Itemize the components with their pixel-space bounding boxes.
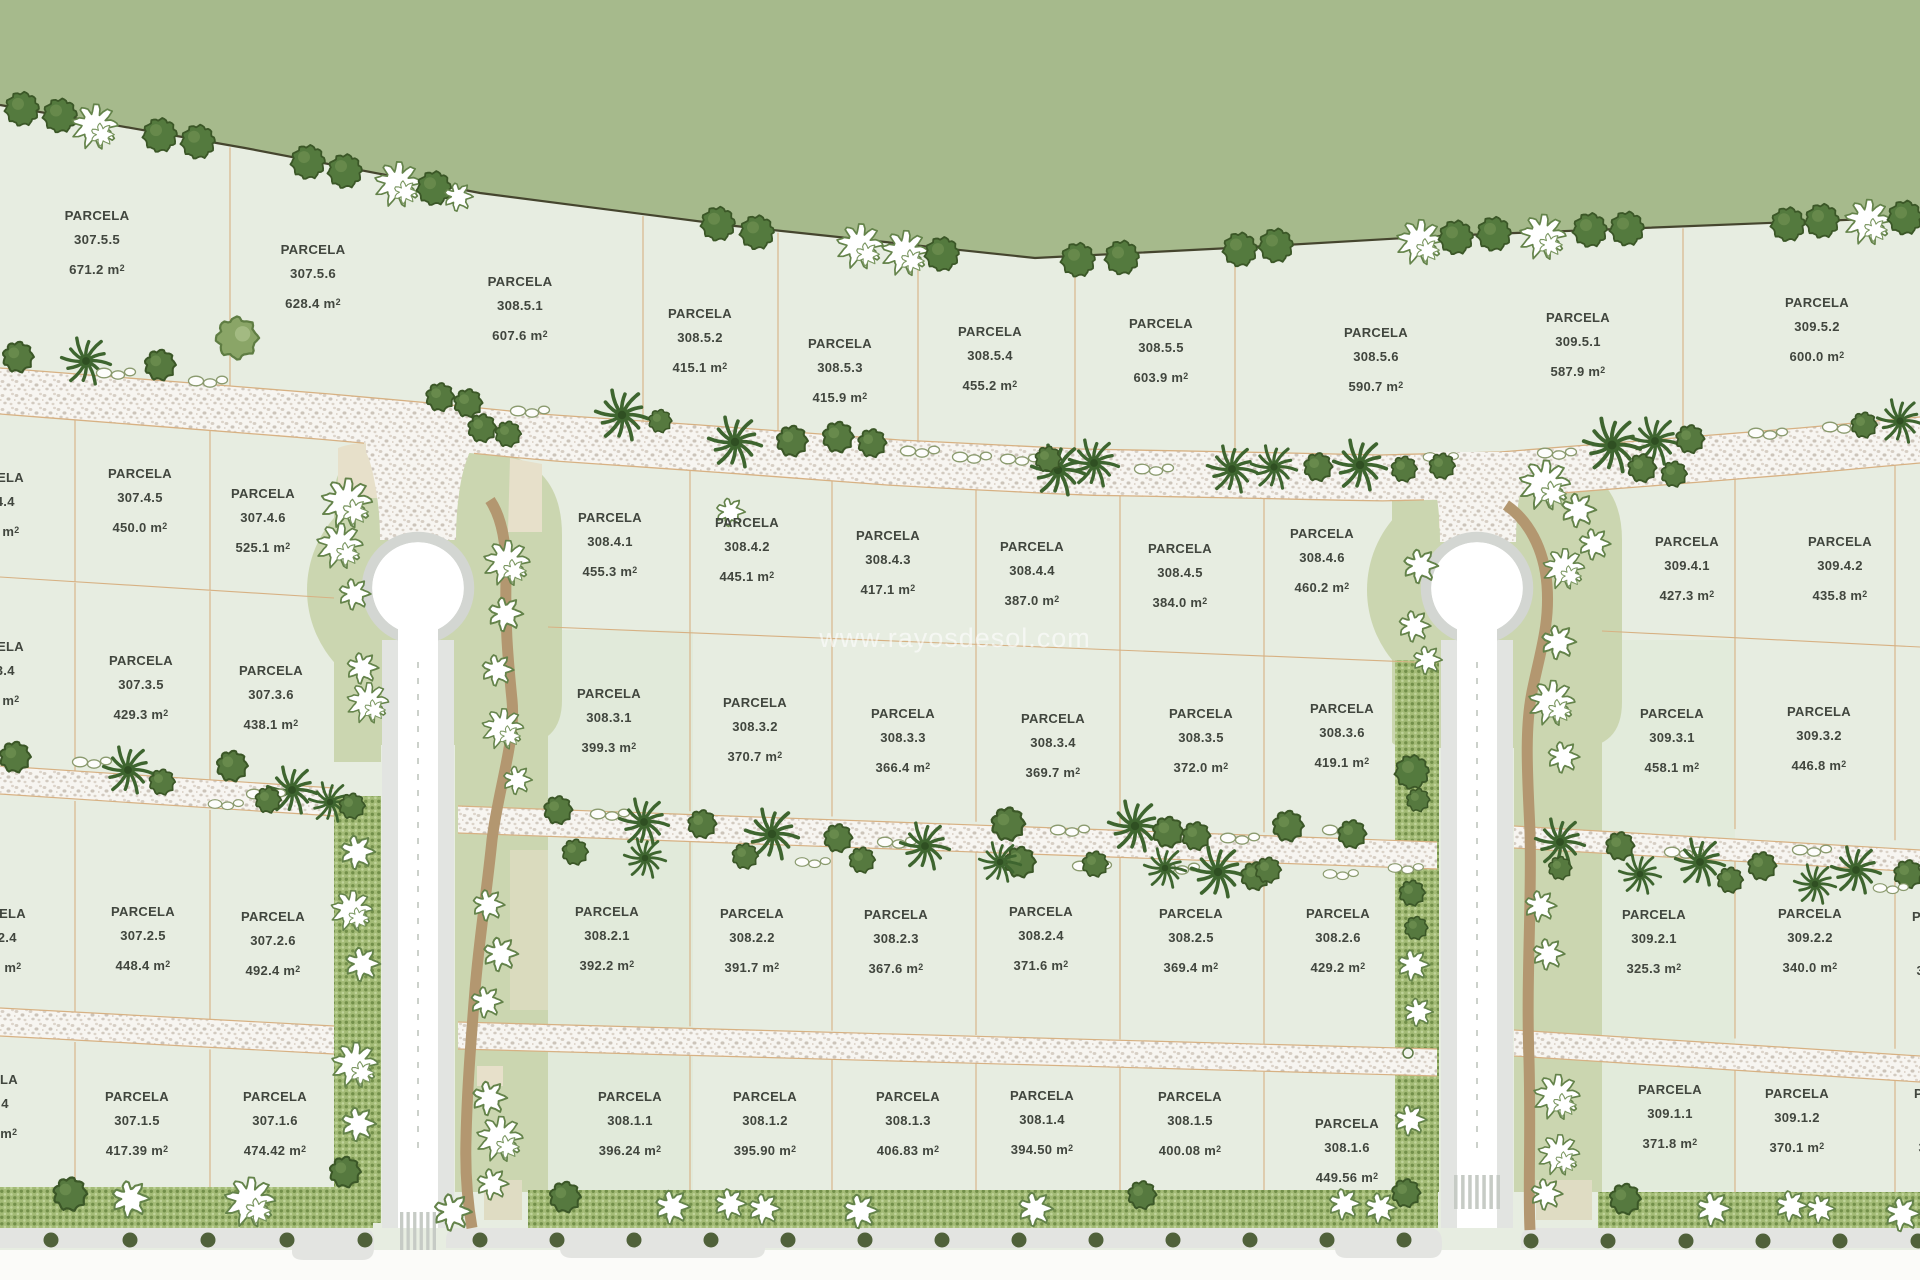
svg-text:396.24 m2: 396.24 m2 [599,1143,662,1158]
svg-text:309.3.1: 309.3.1 [1649,730,1694,745]
svg-text:366.4 m2: 366.4 m2 [875,760,930,775]
svg-text:308.1.2: 308.1.2 [742,1113,787,1128]
svg-text:371.6 m2: 371.6 m2 [1013,958,1068,973]
svg-text:417.1 m2: 417.1 m2 [860,582,915,597]
svg-text:PARCELA: PARCELA [1787,704,1851,719]
svg-text:474.42 m2: 474.42 m2 [244,1143,307,1158]
svg-text:309.4.1: 309.4.1 [1664,558,1709,573]
svg-text:PARCELA: PARCELA [1129,316,1193,331]
svg-text:PARCELA: PARCELA [488,274,553,289]
svg-text:PARCELA: PARCELA [575,904,639,919]
svg-text:308.5.4: 308.5.4 [967,348,1013,363]
svg-text:PARCELA: PARCELA [578,510,642,525]
svg-text:PARCELA: PARCELA [577,686,641,701]
svg-text:399.3 m2: 399.3 m2 [581,740,636,755]
svg-text:PARCELA: PARCELA [0,470,24,485]
svg-text:PARCELA: PARCELA [1765,1086,1829,1101]
svg-text:PARCELA: PARCELA [1009,904,1073,919]
svg-text:671.2 m2: 671.2 m2 [69,262,125,277]
svg-text:308.1.1: 308.1.1 [607,1113,652,1128]
svg-text:309.2.2: 309.2.2 [1787,930,1832,945]
svg-text:PARCELA: PARCELA [0,1072,18,1087]
svg-text:340.0 m2: 340.0 m2 [1782,960,1837,975]
svg-text:458.1 m2: 458.1 m2 [1644,760,1699,775]
svg-text:308.5.1: 308.5.1 [497,298,543,313]
svg-text:406.83 m2: 406.83 m2 [877,1143,940,1158]
svg-text:336.2 m2: 336.2 m2 [1916,963,1920,978]
svg-text:387.0 m2: 387.0 m2 [1004,593,1059,608]
svg-text:PARCELA: PARCELA [1000,539,1064,554]
svg-text:309.5.1: 309.5.1 [1555,334,1600,349]
svg-text:PARCELA: PARCELA [871,706,935,721]
svg-text:438.1 m2: 438.1 m2 [243,717,298,732]
svg-text:445.1 m2: 445.1 m2 [719,569,774,584]
svg-text:PARCELA: PARCELA [281,242,346,257]
svg-text:308.3.6: 308.3.6 [1319,725,1364,740]
svg-text:309.5.2: 309.5.2 [1794,319,1839,334]
svg-text:PARCELA: PARCELA [0,906,26,921]
svg-text:307.4.4: 307.4.4 [0,494,15,509]
svg-text:PARCELA: PARCELA [1159,906,1223,921]
svg-text:308.5.2: 308.5.2 [677,330,722,345]
svg-text:307.3.5: 307.3.5 [118,677,163,692]
svg-text:417.39 m2: 417.39 m2 [106,1143,169,1158]
svg-text:PARCELA: PARCELA [0,639,24,654]
svg-text:307.2.6: 307.2.6 [250,933,295,948]
svg-text:309.3.2: 309.3.2 [1796,728,1841,743]
svg-text:308.3.2: 308.3.2 [732,719,777,734]
svg-text:395.90 m2: 395.90 m2 [734,1143,797,1158]
svg-text:308.3.4: 308.3.4 [1030,735,1076,750]
svg-text:PARCELA: PARCELA [1169,706,1233,721]
svg-text:PARCELA: PARCELA [1344,325,1408,340]
svg-text:307.1.4: 307.1.4 [0,1096,9,1111]
svg-text:435.8 m2: 435.8 m2 [1812,588,1867,603]
svg-text:308.2.3: 308.2.3 [873,931,918,946]
svg-text:PARCELA: PARCELA [1148,541,1212,556]
svg-text:429.2 m2: 429.2 m2 [1310,960,1365,975]
svg-text:PARCELA: PARCELA [231,486,295,501]
svg-text:372.0 m2: 372.0 m2 [1173,760,1228,775]
svg-text:448.4 m2: 448.4 m2 [115,958,170,973]
svg-text:307.4.5: 307.4.5 [117,490,162,505]
svg-text:325.3 m2: 325.3 m2 [1626,961,1681,976]
svg-text:308.2.6: 308.2.6 [1315,930,1360,945]
svg-text:308.2.5: 308.2.5 [1168,930,1213,945]
svg-text:PARCELA: PARCELA [1778,906,1842,921]
svg-text:307.1.6: 307.1.6 [252,1113,297,1128]
svg-text:PARCELA: PARCELA [1306,906,1370,921]
svg-text:PARCELA: PARCELA [1785,295,1849,310]
svg-text:PARCELA: PARCELA [1546,310,1610,325]
svg-text:PARCELA: PARCELA [856,528,920,543]
svg-text:307.4.6: 307.4.6 [240,510,285,525]
svg-text:PARCELA: PARCELA [65,208,130,223]
svg-text:PARCELA: PARCELA [864,907,928,922]
svg-text:PARCELA: PARCELA [1315,1116,1379,1131]
svg-text:PARCELA: PARCELA [105,1089,169,1104]
svg-text:309.1.2: 309.1.2 [1774,1110,1819,1125]
svg-text:455.3 m2: 455.3 m2 [582,564,637,579]
svg-text:307.2.4: 307.2.4 [0,930,17,945]
svg-text:PARCELA: PARCELA [1808,534,1872,549]
svg-text:PARCELA: PARCELA [243,1089,307,1104]
svg-text:308.5.5: 308.5.5 [1138,340,1183,355]
svg-text:308.1.3: 308.1.3 [885,1113,930,1128]
svg-text:PARCELA: PARCELA [108,466,172,481]
svg-text:PARCELA: PARCELA [1640,706,1704,721]
svg-text:PARCELA: PARCELA [1021,711,1085,726]
svg-text:PARCELA: PARCELA [1158,1089,1222,1104]
svg-text:www.rayosdesol.com: www.rayosdesol.com [818,623,1091,653]
svg-text:PARCELA: PARCELA [720,906,784,921]
svg-text:369.4 m2: 369.4 m2 [1163,960,1218,975]
svg-text:308.4.5: 308.4.5 [1157,565,1202,580]
svg-text:370.7 m2: 370.7 m2 [727,749,782,764]
svg-text:429.3 m2: 429.3 m2 [113,707,168,722]
svg-text:628.4 m2: 628.4 m2 [285,296,341,311]
svg-text:PARCELA: PARCELA [876,1089,940,1104]
svg-text:PARCELA: PARCELA [1655,534,1719,549]
svg-text:308.4.6: 308.4.6 [1299,550,1344,565]
svg-text:308.2.1: 308.2.1 [584,928,629,943]
svg-text:369.7 m2: 369.7 m2 [1025,765,1080,780]
svg-text:307.2.5: 307.2.5 [120,928,165,943]
svg-text:415.9 m2: 415.9 m2 [812,390,867,405]
svg-text:307.1.5: 307.1.5 [114,1113,159,1128]
svg-text:PARCELA: PARCELA [1912,909,1920,924]
svg-text:308.1.5: 308.1.5 [1167,1113,1212,1128]
svg-text:427.3 m2: 427.3 m2 [1659,588,1714,603]
svg-text:308.5.6: 308.5.6 [1353,349,1398,364]
svg-text:309.1.1: 309.1.1 [1647,1106,1692,1121]
svg-text:PARCELA: PARCELA [668,306,732,321]
svg-text:492.4 m2: 492.4 m2 [245,963,300,978]
svg-text:415.1 m2: 415.1 m2 [672,360,727,375]
svg-text:308.2.2: 308.2.2 [729,930,774,945]
svg-text:308.2.4: 308.2.4 [1018,928,1064,943]
svg-text:371.8 m2: 371.8 m2 [1642,1136,1697,1151]
svg-text:308.4.1: 308.4.1 [587,534,632,549]
svg-text:391.7 m2: 391.7 m2 [724,960,779,975]
svg-text:419.1 m2: 419.1 m2 [1314,755,1369,770]
svg-text:PARCELA: PARCELA [109,653,173,668]
svg-text:308.5.3: 308.5.3 [817,360,862,375]
svg-text:308.4.2: 308.4.2 [724,539,769,554]
svg-text:600.0 m2: 600.0 m2 [1789,349,1844,364]
svg-text:307.3.4: 307.3.4 [0,663,15,678]
svg-text:460.2 m2: 460.2 m2 [1294,580,1349,595]
svg-text:PARCELA: PARCELA [239,663,303,678]
svg-text:308.3.3: 308.3.3 [880,730,925,745]
svg-text:PARCELA: PARCELA [1290,526,1354,541]
svg-text:PARCELA: PARCELA [1622,907,1686,922]
svg-text:590.7 m2: 590.7 m2 [1348,379,1403,394]
svg-text:PARCELA: PARCELA [1310,701,1374,716]
svg-text:PARCELA: PARCELA [723,695,787,710]
svg-text:394.50 m2: 394.50 m2 [1011,1142,1074,1157]
svg-text:PARCELA: PARCELA [958,324,1022,339]
svg-text:PARCELA: PARCELA [1010,1088,1074,1103]
svg-text:PARCELA: PARCELA [598,1089,662,1104]
svg-text:449.56 m2: 449.56 m2 [1316,1170,1379,1185]
svg-text:392.2 m2: 392.2 m2 [579,958,634,973]
svg-text:308.1.6: 308.1.6 [1324,1140,1369,1155]
svg-text:PARCELA: PARCELA [1914,1086,1920,1101]
svg-text:307.5.6: 307.5.6 [290,266,336,281]
svg-text:308.3.5: 308.3.5 [1178,730,1223,745]
svg-text:308.4.3: 308.4.3 [865,552,910,567]
svg-text:PARCELA: PARCELA [1638,1082,1702,1097]
svg-text:PARCELA: PARCELA [733,1089,797,1104]
svg-text:307.5.5: 307.5.5 [74,232,120,247]
svg-text:309.2.1: 309.2.1 [1631,931,1676,946]
svg-text:446.8 m2: 446.8 m2 [1791,758,1846,773]
svg-text:308.3.1: 308.3.1 [586,710,631,725]
svg-text:309.4.2: 309.4.2 [1817,558,1862,573]
svg-text:450.0 m2: 450.0 m2 [112,520,167,535]
svg-text:587.9 m2: 587.9 m2 [1550,364,1605,379]
svg-text:455.2 m2: 455.2 m2 [962,378,1017,393]
svg-text:400.08 m2: 400.08 m2 [1159,1143,1222,1158]
svg-text:PARCELA: PARCELA [715,515,779,530]
svg-text:367.6 m2: 367.6 m2 [868,961,923,976]
svg-text:PARCELA: PARCELA [808,336,872,351]
svg-text:PARCELA: PARCELA [241,909,305,924]
svg-text:384.0 m2: 384.0 m2 [1152,595,1207,610]
svg-text:307.3.6: 307.3.6 [248,687,293,702]
svg-text:607.6 m2: 607.6 m2 [492,328,548,343]
svg-text:308.4.4: 308.4.4 [1009,563,1055,578]
svg-text:PARCELA: PARCELA [111,904,175,919]
svg-text:308.1.4: 308.1.4 [1019,1112,1065,1127]
svg-text:370.1 m2: 370.1 m2 [1769,1140,1824,1155]
svg-text:603.9 m2: 603.9 m2 [1133,370,1188,385]
svg-text:525.1 m2: 525.1 m2 [235,540,290,555]
